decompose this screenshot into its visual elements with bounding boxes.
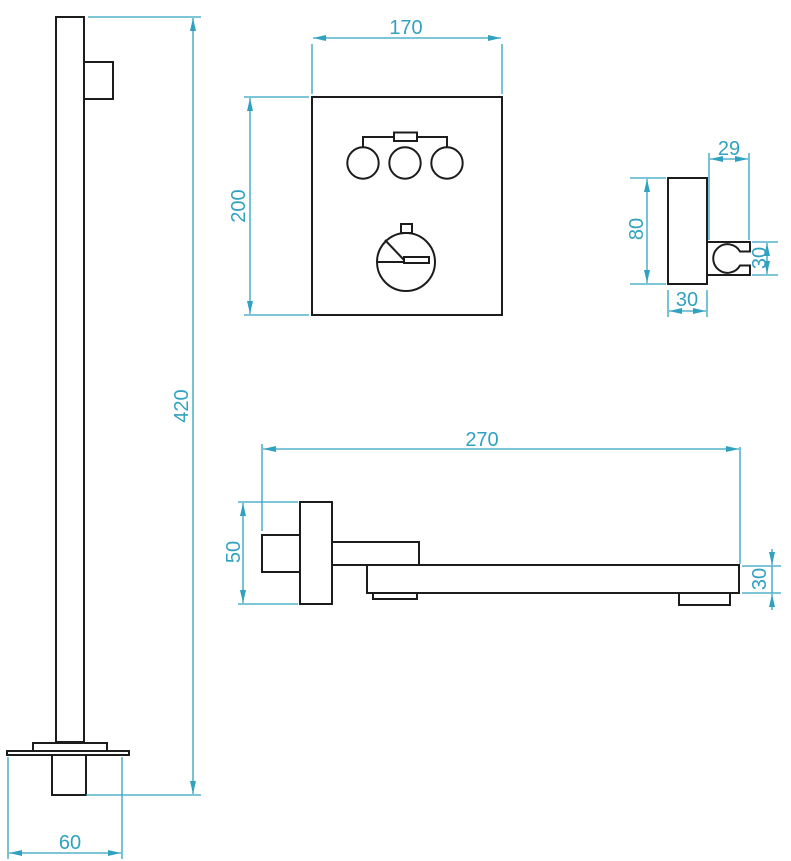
dimension-label: 270 <box>465 429 498 451</box>
diverter-button-left <box>347 147 378 178</box>
spout-view <box>262 502 739 605</box>
dim-panel-width: 170 <box>312 17 502 94</box>
dimension-label: 170 <box>389 17 422 39</box>
diverter-button-middle <box>389 147 420 178</box>
dim-holder-bottom-width: 30 <box>668 289 707 317</box>
column-bar <box>56 17 84 742</box>
dial-angle-line <box>385 240 404 260</box>
dim-holder-top-depth: 29 <box>709 138 749 240</box>
dimension-label: 29 <box>718 138 740 160</box>
dim-column-height: 420 <box>86 17 201 795</box>
dimension-label: 30 <box>749 568 771 590</box>
spout-inlet-block <box>262 535 300 572</box>
dimension-label: 30 <box>676 289 698 311</box>
shower-set-drawing: 420 60 170 200 <box>0 0 791 861</box>
dimension-label: 60 <box>59 832 81 854</box>
dim-panel-height: 200 <box>228 97 309 315</box>
column-inlet-block <box>84 62 113 99</box>
dial-handle <box>404 257 429 263</box>
dim-spout-plate-height: 50 <box>223 502 298 604</box>
column-base-flange <box>33 743 107 751</box>
button-link-box <box>394 133 417 142</box>
dim-spout-bar-height: 30 <box>742 549 781 610</box>
dimension-label: 200 <box>228 189 250 222</box>
column-base-stub <box>52 755 86 795</box>
spout-lower-tab-left <box>373 593 417 599</box>
dim-holder-clip-height: 30 <box>749 242 778 275</box>
dimension-label: 50 <box>223 541 245 563</box>
dial-stem <box>401 224 412 233</box>
spout-bar <box>367 565 739 593</box>
panel-outline <box>312 97 502 315</box>
holder-body <box>668 178 707 284</box>
shower-column-view <box>7 17 129 795</box>
dim-spout-length: 270 <box>262 429 740 564</box>
spout-mounting-plate <box>300 502 332 604</box>
dimension-label: 80 <box>626 218 648 240</box>
spout-outlet-tab <box>679 593 730 605</box>
dim-column-base-width: 60 <box>8 757 122 859</box>
spout-upper-arm <box>332 542 419 565</box>
technical-drawing-canvas: 420 60 170 200 <box>0 0 791 861</box>
dim-holder-height: 80 <box>626 178 666 284</box>
dimension-label: 420 <box>171 389 193 422</box>
diverter-button-right <box>431 147 462 178</box>
dimension-label: 30 <box>749 247 771 269</box>
holder-clip <box>707 242 750 275</box>
control-panel-view <box>312 97 502 315</box>
